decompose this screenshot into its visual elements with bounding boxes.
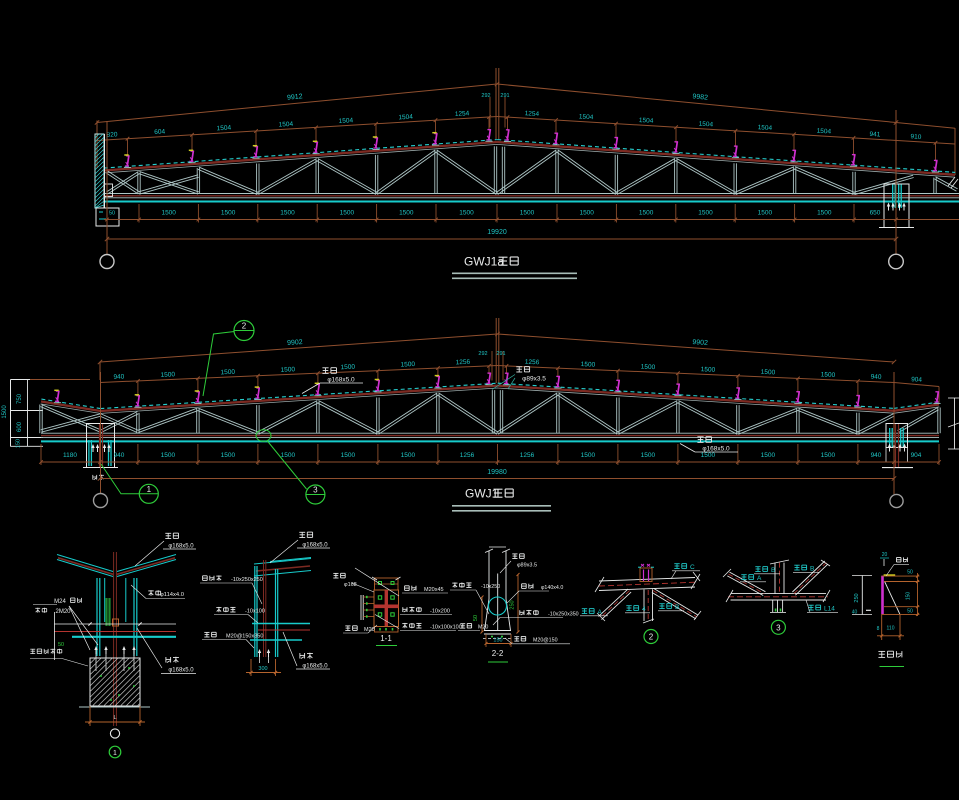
svg-text:9902: 9902 [692,339,708,347]
svg-text:φ89x3.5: φ89x3.5 [522,376,546,383]
svg-text:600: 600 [17,421,23,432]
svg-text:M20: M20 [478,625,488,631]
svg-text:1504: 1504 [639,117,654,125]
svg-text:1500: 1500 [280,366,295,374]
svg-text:1504: 1504 [216,124,231,132]
svg-text:150: 150 [906,592,912,601]
svg-text:M24: M24 [54,599,66,605]
svg-text:1500: 1500 [701,366,716,374]
svg-text:250: 250 [854,593,860,602]
svg-text:40: 40 [852,610,858,616]
svg-text:1500: 1500 [401,452,416,459]
svg-text:1500: 1500 [581,361,596,369]
svg-text:1500: 1500 [161,452,176,459]
svg-text:1504: 1504 [278,121,293,129]
svg-text:8: 8 [877,626,880,632]
svg-text:φ168x5.0: φ168x5.0 [168,668,194,674]
svg-text:820: 820 [106,131,118,139]
svg-text:2: 2 [649,633,654,642]
svg-text:1504: 1504 [816,128,831,136]
svg-text:1500: 1500 [2,405,8,419]
svg-text:1500: 1500 [639,210,654,217]
svg-text:1500: 1500 [281,452,296,459]
svg-text:1500: 1500 [221,452,236,459]
svg-text:φ89x3.5: φ89x3.5 [517,563,537,569]
svg-text:L14: L14 [824,606,835,613]
svg-text:3: 3 [776,623,781,632]
svg-text:1500: 1500 [758,210,773,217]
svg-text:-10x200: -10x200 [430,609,450,615]
svg-text:1: 1 [113,750,117,757]
svg-text:941: 941 [869,131,881,139]
svg-text:1504: 1504 [398,114,413,122]
svg-text:150: 150 [16,439,22,448]
svg-text:50: 50 [58,642,64,648]
svg-text:A: A [757,575,762,582]
svg-text:-10x250x350: -10x250x350 [548,612,579,618]
svg-text:1500: 1500 [400,361,415,369]
svg-text:1500: 1500 [761,369,776,377]
svg-text:-10x250x250: -10x250x250 [231,577,263,583]
svg-text:1500: 1500 [641,364,656,372]
svg-text:50: 50 [473,615,479,621]
svg-text:M20@150x350: M20@150x350 [226,634,263,640]
svg-text:φ168x5.0: φ168x5.0 [302,543,328,549]
svg-text:150: 150 [493,638,502,644]
svg-text:9902: 9902 [287,339,303,347]
svg-text:M20@150: M20@150 [533,638,558,644]
svg-text:-10x100: -10x100 [245,609,265,615]
svg-text:L: L [113,715,116,721]
svg-text:1254: 1254 [524,110,539,118]
svg-text:1-1: 1-1 [380,634,392,643]
svg-text:1500: 1500 [340,210,355,217]
svg-text:4: 4 [642,606,646,613]
svg-text:GWJ1: GWJ1 [465,487,499,501]
svg-text:1500: 1500 [821,452,836,459]
svg-text:A: A [598,609,603,616]
svg-text:650: 650 [870,210,881,217]
svg-text:1500: 1500 [581,452,596,459]
svg-text:B: B [771,567,775,574]
svg-text:1500: 1500 [340,364,355,372]
svg-text:-10x250: -10x250 [481,584,500,590]
svg-text:φ114x4.0: φ114x4.0 [160,592,184,598]
svg-text:1180: 1180 [63,452,77,459]
svg-text:2: 2 [242,322,247,331]
svg-text:1500: 1500 [701,452,716,459]
svg-text:1254: 1254 [455,110,470,118]
svg-text:3: 3 [313,486,318,495]
svg-text:292: 292 [481,93,490,99]
svg-text:1: 1 [147,485,152,494]
svg-text:50: 50 [109,211,115,217]
svg-text:110: 110 [887,626,895,632]
svg-text:904: 904 [911,376,923,384]
svg-text:2M20: 2M20 [55,609,71,615]
svg-text:1500: 1500 [459,210,474,217]
svg-text:940: 940 [871,452,882,459]
svg-text:940: 940 [114,452,125,459]
svg-text:1504: 1504 [757,124,772,132]
svg-text:904: 904 [911,452,922,459]
svg-text:1500: 1500 [280,210,295,217]
svg-text:1256: 1256 [456,359,471,367]
svg-text:2-2: 2-2 [492,649,504,658]
svg-text:1500: 1500 [520,210,535,217]
svg-text:940: 940 [870,373,882,381]
svg-text:250: 250 [510,600,516,609]
svg-text:291: 291 [500,93,509,99]
svg-text:604: 604 [154,128,166,136]
svg-text:1500: 1500 [160,371,175,379]
svg-text:19920: 19920 [487,229,507,236]
svg-text:GWJ1a: GWJ1a [464,255,504,269]
svg-text:1256: 1256 [460,452,475,459]
svg-text:19980: 19980 [487,469,507,476]
svg-text:50: 50 [907,609,913,615]
svg-text:1500: 1500 [161,210,176,217]
svg-text:1500: 1500 [220,369,235,377]
svg-text:-10x100x100: -10x100x100 [430,625,462,631]
svg-text:50: 50 [907,570,913,576]
svg-text:750: 750 [17,393,23,404]
svg-text:φ168x5.0: φ168x5.0 [327,377,355,384]
svg-text:C: C [690,564,695,571]
svg-text:1504: 1504 [338,117,353,125]
svg-text:1504: 1504 [698,121,713,129]
svg-text:1500: 1500 [399,210,414,217]
svg-text:1504: 1504 [579,113,594,121]
svg-text:910: 910 [910,133,922,141]
svg-text:291: 291 [496,351,505,357]
svg-text:φ168x5.0: φ168x5.0 [702,446,730,453]
svg-text:1256: 1256 [520,452,535,459]
svg-text:940: 940 [113,373,125,381]
svg-text:M20x45: M20x45 [424,587,444,593]
svg-text:20: 20 [882,552,888,558]
svg-text:292: 292 [478,351,487,357]
svg-text:1500: 1500 [698,210,713,217]
svg-text:1500: 1500 [817,210,832,217]
svg-text:300: 300 [258,666,267,672]
svg-text:9912: 9912 [287,93,303,101]
svg-text:φ140x4.0: φ140x4.0 [541,585,563,591]
svg-text:φ168x5.0: φ168x5.0 [168,544,194,550]
svg-text:1500: 1500 [579,210,594,217]
svg-text:1500: 1500 [341,452,356,459]
svg-text:1256: 1256 [525,359,540,367]
svg-text:9982: 9982 [692,93,708,101]
svg-text:φ168: φ168 [344,582,357,588]
svg-text:B: B [810,566,814,573]
svg-text:1500: 1500 [641,452,656,459]
svg-text:φ168x5.0: φ168x5.0 [302,664,328,670]
svg-text:1500: 1500 [821,371,836,379]
svg-text:1500: 1500 [221,210,236,217]
svg-text:B: B [675,604,679,611]
svg-text:1500: 1500 [761,452,776,459]
